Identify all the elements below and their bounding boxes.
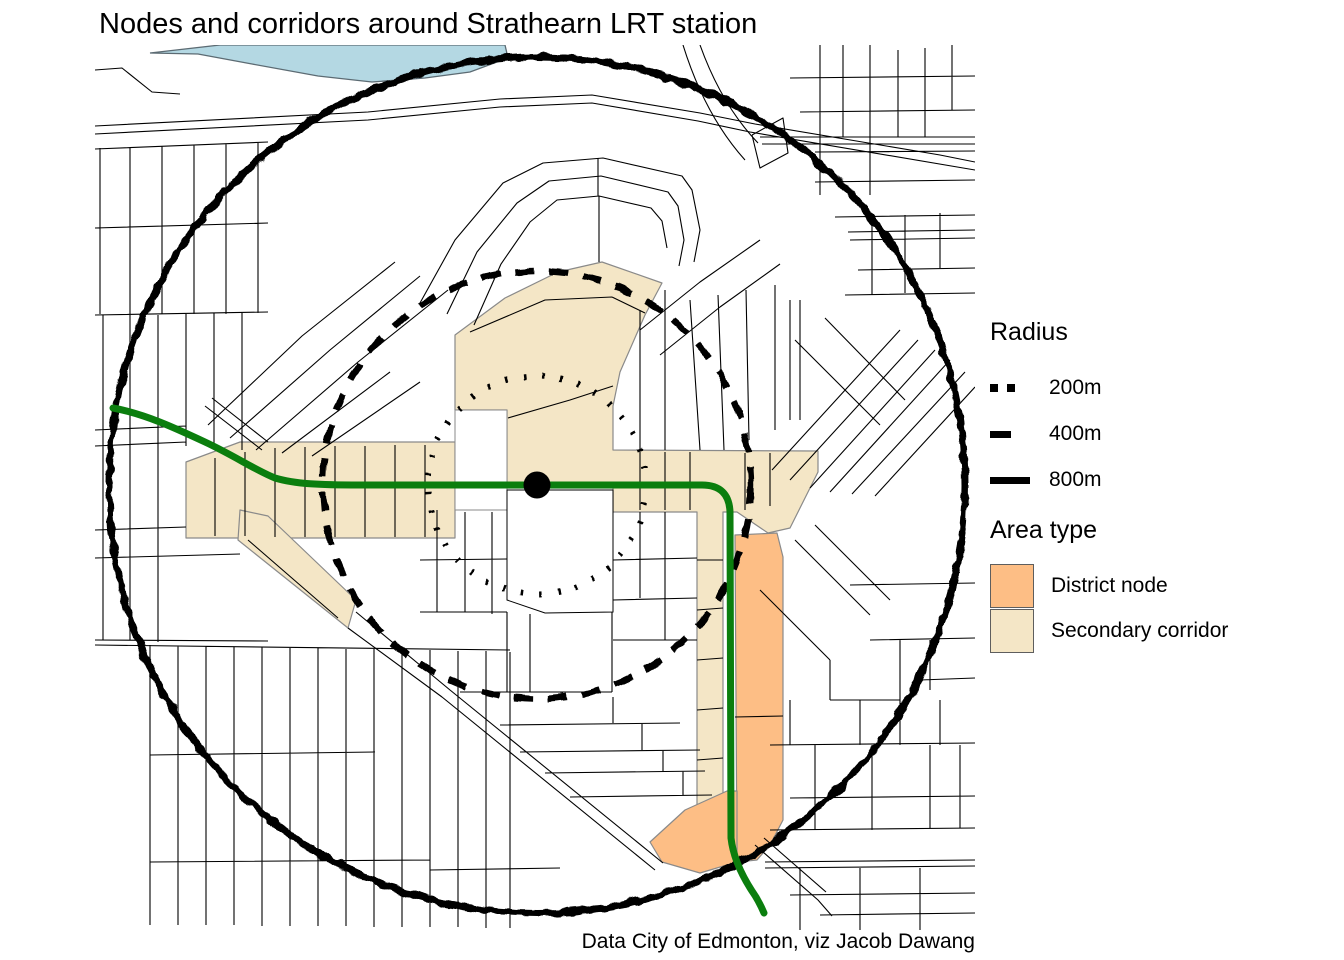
dashed-line-icon — [990, 431, 1040, 438]
legend-item-400m: 400m — [990, 411, 1320, 457]
legend-radius-title: Radius — [990, 318, 1320, 347]
legend-item-label: 200m — [1049, 376, 1102, 400]
legend-item-district-node: District node — [990, 563, 1330, 608]
legend-radius: Radius 200m 400m 800m — [990, 318, 1320, 503]
legend-item-label: Secondary corridor — [1051, 619, 1228, 643]
district-node-swatch — [990, 564, 1034, 608]
legend-item-200m: 200m — [990, 365, 1320, 411]
figure: Nodes and corridors around Strathearn LR… — [0, 0, 1344, 960]
district-node-area — [735, 533, 783, 862]
solid-line-icon — [990, 477, 1040, 484]
secondary-corridor-swatch — [990, 609, 1034, 653]
legend-item-label: 400m — [1049, 422, 1102, 446]
station-marker — [524, 472, 551, 499]
legend-item-label: District node — [1051, 574, 1168, 598]
page-title: Nodes and corridors around Strathearn LR… — [99, 8, 757, 41]
data-credit-caption: Data City of Edmonton, viz Jacob Dawang — [555, 930, 975, 954]
dotted-line-icon — [990, 384, 1040, 392]
legend-area-title: Area type — [990, 516, 1330, 545]
legend-item-label: 800m — [1049, 468, 1102, 492]
park-block — [455, 410, 507, 510]
legend-item-800m: 800m — [990, 457, 1320, 503]
legend-area-type: Area type District node Secondary corrid… — [990, 516, 1330, 653]
district-node-area — [650, 791, 737, 873]
legend-item-secondary-corridor: Secondary corridor — [990, 608, 1330, 653]
